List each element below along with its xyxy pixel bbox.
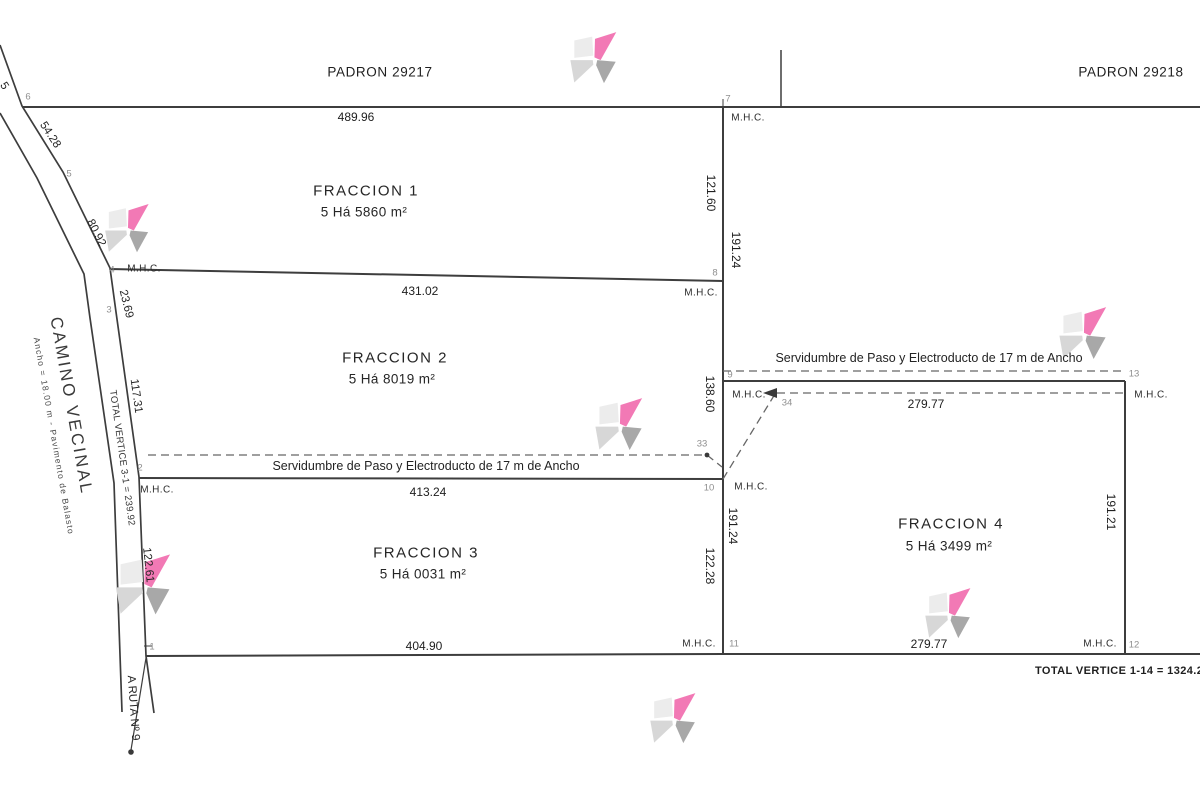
vertex-9: 9 bbox=[727, 370, 732, 381]
dim-5-4: 80.92 bbox=[84, 217, 108, 248]
fraccion2-name: FRACCION 2 bbox=[342, 350, 448, 367]
dim-121-60: 121.60 bbox=[704, 175, 718, 212]
total-vertice-1-14: TOTAL VERTICE 1-14 = 1324.2 bbox=[1035, 665, 1200, 677]
fraccion4-area: 5 Há 3499 m² bbox=[906, 539, 993, 554]
vertex-1: 1 bbox=[149, 642, 154, 653]
padron-right-label: PADRON 29218 bbox=[1078, 65, 1183, 80]
vertex-13: 13 bbox=[1129, 369, 1140, 380]
dim-191-24-bot: 191.24 bbox=[726, 508, 740, 545]
mhc-v2: M.H.C. bbox=[140, 485, 174, 496]
mhc-v8: M.H.C. bbox=[684, 288, 718, 299]
dim-6-7: 489.96 bbox=[338, 110, 375, 124]
dim-2-1: 122.61 bbox=[140, 547, 156, 583]
mhc-v10: M.H.C. bbox=[734, 482, 768, 493]
dim-191-24-top: 191.24 bbox=[729, 232, 743, 269]
padron-left-label: PADRON 29217 bbox=[327, 65, 432, 80]
dim-11-12: 279.77 bbox=[911, 637, 948, 651]
servidumbre-left: Servidumbre de Paso y Electroducto de 17… bbox=[272, 459, 579, 473]
vertex-5: 5 bbox=[66, 169, 71, 180]
mhc-v4: M.H.C. bbox=[127, 264, 161, 275]
vertex-10: 10 bbox=[704, 483, 715, 494]
fraccion4-name: FRACCION 4 bbox=[898, 516, 1004, 533]
mhc-v7: M.H.C. bbox=[731, 113, 765, 124]
dim-6-5: 54.28 bbox=[37, 120, 63, 151]
dim-3-2: 117.31 bbox=[128, 378, 145, 414]
fraccion1-name: FRACCION 1 bbox=[313, 183, 419, 200]
mhc-v13: M.H.C. bbox=[1134, 390, 1168, 401]
vertex-7: 7 bbox=[725, 94, 730, 105]
vertex-34: 34 bbox=[782, 398, 793, 409]
survey-plan-page: { "canvas": {"width": 1200, "height": 79… bbox=[0, 0, 1200, 790]
dim-4-3: 23.69 bbox=[117, 289, 136, 320]
edge-cut-dim-fragment: 5 bbox=[0, 80, 11, 92]
vertex-33: 33 bbox=[697, 439, 708, 450]
vertex-11: 11 bbox=[729, 639, 739, 650]
vertex-8: 8 bbox=[712, 268, 717, 279]
fraccion2-area: 5 Há 8019 m² bbox=[349, 372, 436, 387]
dim-34-13: 279.77 bbox=[908, 397, 945, 411]
label-layer: PADRON 29217PADRON 29218489.967M.H.C.121… bbox=[0, 0, 1200, 790]
mhc-v11: M.H.C. bbox=[682, 639, 716, 650]
dim-2-10: 413.24 bbox=[410, 485, 447, 499]
vertex-6: 6 bbox=[25, 92, 30, 103]
dim-122-28: 122.28 bbox=[703, 548, 717, 585]
dim-4-8: 431.02 bbox=[402, 284, 439, 298]
fraccion1-area: 5 Há 5860 m² bbox=[321, 205, 408, 220]
mhc-v12: M.H.C. bbox=[1083, 639, 1117, 650]
vertex-4: 4 bbox=[109, 265, 114, 276]
ruta-label: A RUTA Nº 9 bbox=[125, 675, 142, 741]
dim-191-21: 191.21 bbox=[1104, 494, 1118, 531]
dim-138-60: 138.60 bbox=[703, 376, 717, 413]
fraccion3-area: 5 Há 0031 m² bbox=[380, 567, 467, 582]
mhc-v9: M.H.C. bbox=[732, 390, 766, 401]
vertex-2: 2 bbox=[137, 463, 142, 474]
fraccion3-name: FRACCION 3 bbox=[373, 545, 479, 562]
servidumbre-right: Servidumbre de Paso y Electroducto de 17… bbox=[775, 351, 1082, 365]
vertex-3: 3 bbox=[106, 305, 111, 316]
vertex-12: 12 bbox=[1129, 640, 1140, 651]
dim-1-11: 404.90 bbox=[406, 639, 443, 653]
